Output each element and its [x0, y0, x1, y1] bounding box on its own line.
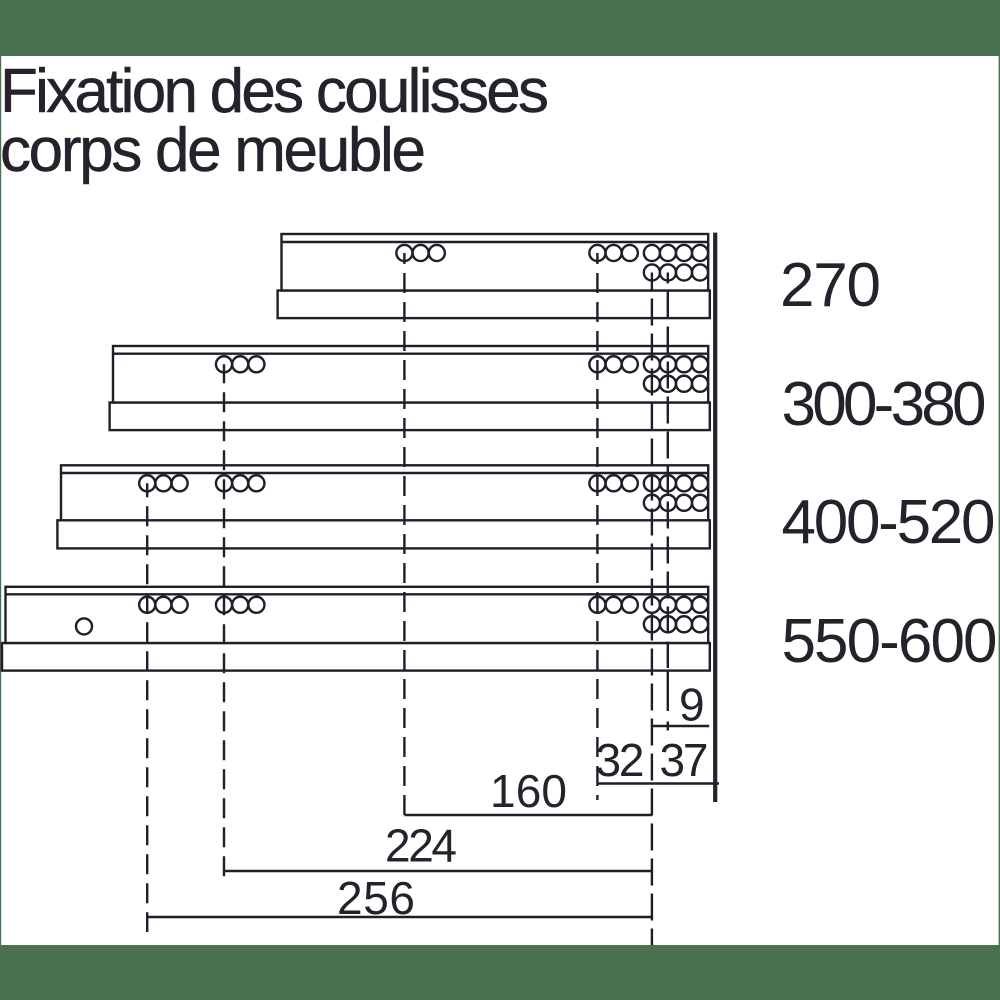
- svg-text:400-520: 400-520: [782, 488, 996, 557]
- svg-text:256: 256: [337, 872, 415, 924]
- svg-text:550-600: 550-600: [782, 607, 998, 676]
- svg-text:32: 32: [596, 734, 645, 786]
- svg-text:270: 270: [780, 251, 881, 320]
- svg-text:224: 224: [385, 820, 457, 872]
- svg-text:9: 9: [679, 679, 705, 731]
- svg-text:160: 160: [490, 765, 567, 817]
- svg-text:37: 37: [660, 734, 709, 786]
- svg-text:corps de meuble: corps de meuble: [0, 116, 426, 185]
- svg-text:300-380: 300-380: [782, 370, 987, 439]
